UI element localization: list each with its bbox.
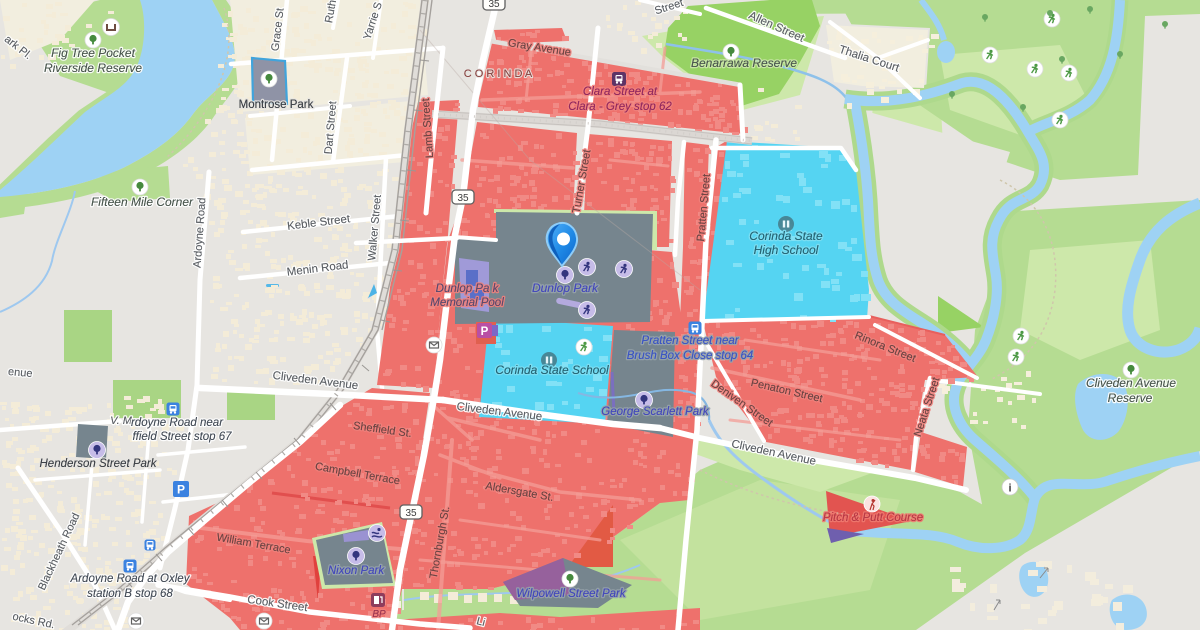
svg-text:High School: High School (754, 243, 819, 257)
svg-text:Corinda State School: Corinda State School (495, 363, 609, 377)
svg-text:rdoyne Road near: rdoyne Road near (131, 417, 224, 429)
svg-text:Fifteen Mile Corner: Fifteen Mile Corner (91, 195, 194, 209)
svg-text:Ardoyne Road at Oxley: Ardoyne Road at Oxley (70, 573, 191, 585)
svg-text:ffield Street stop 67: ffield Street stop 67 (132, 431, 232, 443)
svg-text:35: 35 (488, 0, 500, 10)
svg-text:Memorial Pool: Memorial Pool (430, 297, 504, 309)
svg-text:George Scarlett Park: George Scarlett Park (601, 406, 710, 418)
svg-text:Reserve: Reserve (1108, 391, 1153, 405)
svg-text:Benarrawa Reserve: Benarrawa Reserve (691, 56, 797, 70)
svg-text:Clara - Grey stop 62: Clara - Grey stop 62 (568, 101, 672, 113)
svg-text:C O R I N D A: C O R I N D A (464, 68, 533, 80)
svg-text:35: 35 (405, 508, 417, 519)
svg-text:Riverside Reserve: Riverside Reserve (44, 61, 142, 75)
svg-text:Pratten Street near: Pratten Street near (641, 335, 739, 347)
svg-text:Corinda State: Corinda State (749, 229, 823, 243)
svg-text:P: P (481, 326, 489, 338)
svg-text:Brush Box Close stop 64: Brush Box Close stop 64 (627, 350, 754, 362)
svg-text:35: 35 (457, 193, 469, 204)
svg-text:Clara Street at: Clara Street at (583, 86, 658, 98)
svg-text:Pitch & Putt Course: Pitch & Putt Course (823, 512, 923, 524)
svg-text:Wilpowell Street Park: Wilpowell Street Park (516, 588, 626, 600)
svg-text:Fig Tree Pocket: Fig Tree Pocket (51, 46, 135, 60)
svg-text:i: i (1008, 483, 1011, 495)
svg-text:station B stop 68: station B stop 68 (87, 588, 173, 600)
svg-text:Henderson Street Park: Henderson Street Park (40, 458, 158, 470)
svg-text:Nixon Park: Nixon Park (328, 565, 385, 577)
svg-text:Dunlop Park: Dunlop Park (532, 281, 599, 295)
svg-text:enue: enue (8, 366, 33, 380)
svg-text:Cliveden Avenue: Cliveden Avenue (1086, 376, 1176, 390)
svg-text:V. M: V. M (110, 415, 133, 427)
svg-text:Montrose Park: Montrose Park (239, 99, 314, 111)
svg-text:P: P (177, 483, 185, 497)
svg-text:BP: BP (372, 609, 386, 620)
svg-text:Dunlop Pa k: Dunlop Pa k (436, 283, 500, 295)
